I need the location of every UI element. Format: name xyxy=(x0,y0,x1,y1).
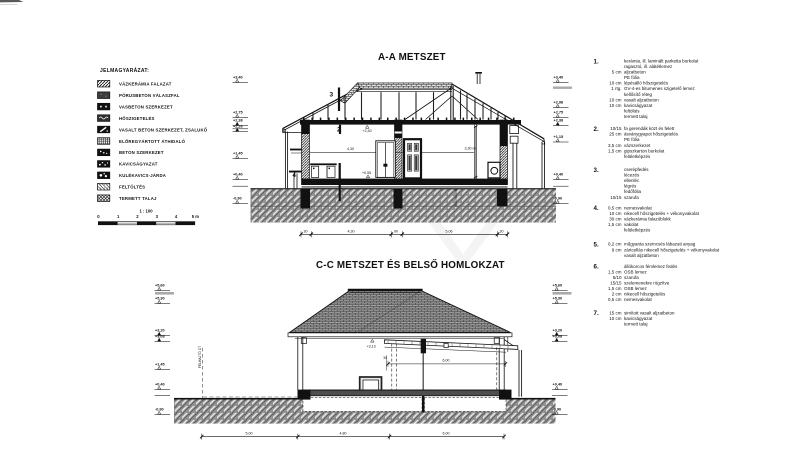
svg-text:+5,60: +5,60 xyxy=(553,283,563,287)
svg-text:+5,30: +5,30 xyxy=(155,296,165,300)
svg-text:10 cm: 10 cm xyxy=(609,211,622,216)
svg-text:0,5 cm: 0,5 cm xyxy=(608,205,622,210)
svg-text:3,30 m: 3,30 m xyxy=(465,147,476,151)
svg-text:2.: 2. xyxy=(594,126,599,133)
svg-text:ásványgyapot hőszigetelés: ásványgyapot hőszigetelés xyxy=(624,132,679,137)
svg-text:0,2 cm: 0,2 cm xyxy=(608,242,622,247)
svg-text:OSB lemez: OSB lemez xyxy=(624,286,648,291)
svg-text:1,5 cm: 1,5 cm xyxy=(608,148,622,153)
svg-text:FELTÖLTÉS: FELTÖLTÉS xyxy=(119,185,145,190)
svg-text:+0,40: +0,40 xyxy=(554,172,564,176)
svg-text:90: 90 xyxy=(394,229,398,233)
svg-text:9 cm: 9 cm xyxy=(612,247,622,252)
svg-text:-0,90: -0,90 xyxy=(553,407,562,411)
svg-text:10 cm: 10 cm xyxy=(609,103,622,108)
svg-text:15/15: 15/15 xyxy=(610,281,622,286)
svg-text:+2,26: +2,26 xyxy=(233,124,243,128)
svg-text:10/15: 10/15 xyxy=(610,195,622,200)
svg-text:FELHAJTÓ ÚT: FELHAJTÓ ÚT xyxy=(197,346,202,368)
svg-text:2 cm: 2 cm xyxy=(612,292,622,297)
svg-text:kerámia, ill. laminált parkett: kerámia, ill. laminált parketta burkolat xyxy=(624,59,699,64)
svg-text:5 cm: 5 cm xyxy=(612,70,622,75)
svg-text:4,30: 4,30 xyxy=(348,229,355,233)
svg-text:kavicságyazat: kavicságyazat xyxy=(624,103,653,108)
svg-text:lécezés: lécezés xyxy=(624,173,640,178)
svg-text:vázszerkezet: vázszerkezet xyxy=(624,143,651,148)
svg-text:+1,15: +1,15 xyxy=(554,135,564,139)
svg-text:PE fólia: PE fólia xyxy=(624,137,640,142)
svg-text:nemesvakolat: nemesvakolat xyxy=(624,297,653,302)
svg-text:aljzatbeton: aljzatbeton xyxy=(624,70,646,75)
svg-text:termett talaj: termett talaj xyxy=(624,114,648,119)
svg-text:KULÉKAVICS-JÁRDA: KULÉKAVICS-JÁRDA xyxy=(119,173,166,178)
svg-text:nikecell hőszigetelés: nikecell hőszigetelés xyxy=(624,292,666,297)
svg-text:+3,20: +3,20 xyxy=(155,328,165,332)
svg-text:kavicságyazat: kavicságyazat xyxy=(624,316,653,321)
svg-text:vasalt aljzatbeton: vasalt aljzatbeton xyxy=(624,97,659,102)
svg-text:A-A METSZET: A-A METSZET xyxy=(378,52,446,63)
svg-text:-0,90: -0,90 xyxy=(233,196,242,200)
svg-text:VASALT BETON SZERKEZET, ZSALUK: VASALT BETON SZERKEZET, ZSALUKŐ xyxy=(119,127,208,132)
svg-text:PÓRUSBETON VÁLASZFAL: PÓRUSBETON VÁLASZFAL xyxy=(119,93,180,98)
svg-text:10/15: 10/15 xyxy=(610,126,622,131)
svg-text:15 cm: 15 cm xyxy=(609,310,622,315)
svg-text:5,00: 5,00 xyxy=(246,432,253,436)
svg-text:+2,98: +2,98 xyxy=(554,100,564,104)
svg-text:JELMAGYARÁZAT:: JELMAGYARÁZAT: xyxy=(100,67,149,74)
svg-text:simított vasalt aljzatbeton: simított vasalt aljzatbeton xyxy=(624,310,675,315)
svg-text:1,5 cm: 1,5 cm xyxy=(608,222,622,227)
svg-text:vasalt aljzatbeton: vasalt aljzatbeton xyxy=(624,253,659,258)
svg-text:+5,30: +5,30 xyxy=(553,296,563,300)
svg-text:3,5 cm: 3,5 cm xyxy=(608,143,622,148)
svg-text:termett talaj: termett talaj xyxy=(624,321,648,326)
svg-text:+3,40: +3,40 xyxy=(233,75,243,79)
svg-text:HŐSZIGETELÉS: HŐSZIGETELÉS xyxy=(119,116,155,121)
svg-text:30: 30 xyxy=(500,229,504,233)
svg-text:+1,45: +1,45 xyxy=(155,362,165,366)
svg-text:C-C METSZET ÉS BELSŐ HOMLOKZAT: C-C METSZET ÉS BELSŐ HOMLOKZAT xyxy=(316,259,505,271)
svg-text:3: 3 xyxy=(330,92,334,99)
svg-text:VÁZKERÁMIA FALAZAT: VÁZKERÁMIA FALAZAT xyxy=(119,82,172,87)
svg-text:KAVICSÁGYAZAT: KAVICSÁGYAZAT xyxy=(119,162,158,167)
svg-text:5,06: 5,06 xyxy=(446,229,453,233)
svg-text:szarufa: szarufa xyxy=(624,195,639,200)
svg-text:1,5 cm: 1,5 cm xyxy=(608,286,622,291)
svg-text:+3,08: +3,08 xyxy=(553,334,563,338)
svg-text:5/10: 5/10 xyxy=(613,275,622,280)
svg-text:nikecell hőszigetelés + vékony: nikecell hőszigetelés + vékonyvakolat xyxy=(624,211,700,216)
svg-text:10 cm: 10 cm xyxy=(609,97,622,102)
svg-text:7.: 7. xyxy=(594,310,599,317)
svg-text:ELŐREGYÁRTOTT ÁTHIDALÓ: ELŐREGYÁRTOTT ÁTHIDALÓ xyxy=(119,139,186,144)
svg-text:25 cm: 25 cm xyxy=(609,132,622,137)
svg-text:0,5 cm: 0,5 cm xyxy=(608,297,622,302)
svg-text:szarufa: szarufa xyxy=(624,275,639,280)
svg-text:10 cm: 10 cm xyxy=(609,81,622,86)
svg-text:+2,75: +2,75 xyxy=(554,110,564,114)
svg-text:műgyanta szemcsés lábazati any: műgyanta szemcsés lábazati anyag xyxy=(624,242,696,247)
svg-text:feltöltés: feltöltés xyxy=(624,108,640,113)
svg-text:5.: 5. xyxy=(594,242,599,249)
svg-text:+3,13: +3,13 xyxy=(367,345,376,349)
svg-text:4.: 4. xyxy=(594,205,599,212)
svg-text:+2,75: +2,75 xyxy=(233,110,243,114)
svg-text:ragasztó, ill. alátétlemez: ragasztó, ill. alátétlemez xyxy=(624,64,673,69)
svg-text:GV-4-es bitumenes szigetelő le: GV-4-es bitumenes szigetelő lemez xyxy=(624,86,696,91)
svg-text:+3,40: +3,40 xyxy=(554,75,564,79)
svg-text:30: 30 xyxy=(304,229,308,233)
svg-text:4,80: 4,80 xyxy=(340,432,347,436)
svg-text:-0,90: -0,90 xyxy=(155,407,164,411)
svg-text:BETON SZERKEZET: BETON SZERKEZET xyxy=(119,150,164,155)
svg-text:6,00: 6,00 xyxy=(443,432,450,436)
svg-text:3.: 3. xyxy=(594,167,599,174)
svg-text:1,5 cm: 1,5 cm xyxy=(608,269,622,274)
svg-text:kellősítő réteg: kellősítő réteg xyxy=(624,92,653,97)
svg-text:VASBETON SZERKEZET: VASBETON SZERKEZET xyxy=(119,104,173,109)
svg-text:1.: 1. xyxy=(594,58,599,65)
svg-text:nemesvakolat: nemesvakolat xyxy=(624,205,653,210)
svg-text:4,30: 4,30 xyxy=(347,147,354,151)
svg-text:szelemenekre rögzítve: szelemenekre rögzítve xyxy=(624,281,670,286)
svg-text:+2,40: +2,40 xyxy=(363,129,372,133)
svg-text:+5,60: +5,60 xyxy=(155,283,165,287)
svg-text:6.: 6. xyxy=(594,264,599,271)
svg-text:+0,55: +0,55 xyxy=(362,171,371,175)
svg-text:1 rtg.: 1 rtg. xyxy=(611,86,621,91)
svg-text:zártcellás nikecell hőszigetel: zártcellás nikecell hőszigetelés + vékon… xyxy=(624,247,720,252)
svg-text:1 : 100: 1 : 100 xyxy=(140,208,154,213)
svg-text:-0,90: -0,90 xyxy=(554,196,563,200)
svg-text:vázkerámia falazóblokk: vázkerámia falazóblokk xyxy=(624,216,672,221)
svg-text:légrés: légrés xyxy=(624,184,637,189)
svg-text:+2,38: +2,38 xyxy=(233,118,243,122)
svg-text:cserépfedés: cserépfedés xyxy=(624,167,649,172)
svg-text:fedőfólia: fedőfólia xyxy=(624,189,642,194)
svg-text:ellenléc: ellenléc xyxy=(624,178,640,183)
svg-text:PE fólia: PE fólia xyxy=(624,75,640,80)
svg-text:lépésálló hőszigetelés: lépésálló hőszigetelés xyxy=(624,81,669,86)
svg-text:fa gerendák közt és felett: fa gerendák közt és felett xyxy=(624,126,675,131)
svg-text:vakolat: vakolat xyxy=(624,222,639,227)
svg-text:TERMETT TALAJ: TERMETT TALAJ xyxy=(119,196,157,201)
svg-text:+1,45: +1,45 xyxy=(233,151,243,155)
svg-text:+0,40: +0,40 xyxy=(553,382,563,386)
svg-text:+0,40: +0,40 xyxy=(233,172,243,176)
svg-text:állókorcos fémlemez fedés: állókorcos fémlemez fedés xyxy=(624,264,678,269)
svg-text:gipszkarton burkolat: gipszkarton burkolat xyxy=(624,148,665,153)
svg-text:+2,38: +2,38 xyxy=(554,118,564,122)
svg-text:+3,20: +3,20 xyxy=(553,328,563,332)
svg-text:5 m: 5 m xyxy=(192,214,199,219)
svg-text:30 cm: 30 cm xyxy=(609,216,622,221)
svg-text:felületképzés: felületképzés xyxy=(624,154,651,159)
svg-text:6,00: 6,00 xyxy=(443,359,450,363)
svg-text:10 cm: 10 cm xyxy=(609,316,622,321)
svg-text:+0,40: +0,40 xyxy=(155,382,165,386)
svg-text:+3,08: +3,08 xyxy=(155,334,165,338)
svg-text:OSB lemez: OSB lemez xyxy=(624,269,648,274)
svg-text:felületképzés: felületképzés xyxy=(624,228,651,233)
